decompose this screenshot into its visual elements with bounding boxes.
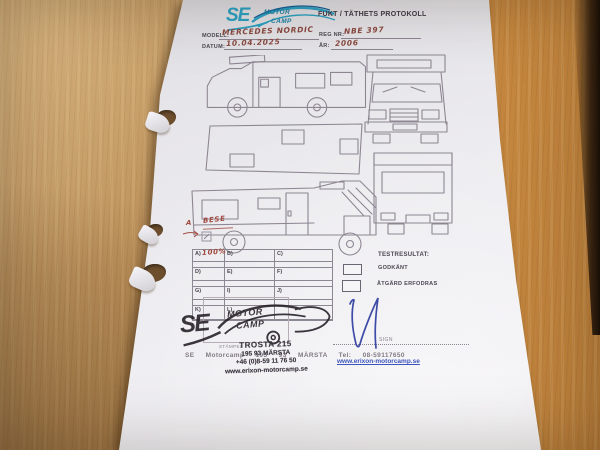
grid-cell-c: C): [275, 250, 332, 262]
ar-label: ÅR:: [319, 43, 330, 49]
drawing-roof-view: [196, 123, 376, 179]
ar-value: 2006: [335, 38, 359, 48]
signature-ink: [340, 294, 402, 352]
logo-motor-text: MOTOR: [264, 9, 290, 16]
page-title: FUKT / TÄTHETS PROTOKOLL: [318, 11, 427, 18]
grid-cell-e: E): [225, 268, 275, 281]
stamp-address-block: TROSTA 215 195 93 MÄRSTA +46 (0)8-59 11 …: [219, 339, 312, 376]
annotation-a: A: [186, 219, 192, 227]
torn-hole-top: [146, 104, 184, 138]
footer-website-link: www.erixon-motorcamp.se: [337, 358, 420, 365]
label-godkant: GODKÄNT: [378, 265, 408, 271]
logo-camp-text: CAMP: [271, 18, 292, 25]
ar-underline: [331, 49, 393, 50]
stamp-se-text: SE: [179, 309, 210, 339]
torn-hole-middle: [139, 220, 173, 248]
annotation-check-box: [201, 231, 212, 242]
torn-hole-bottom: [130, 256, 174, 292]
datum-label: DATUM:: [202, 44, 225, 50]
annotation-arrow-icon: [181, 227, 201, 241]
paper-sheet-wrapper: SE MOTOR CAMP FUKT / TÄTHETS PROTOKOLL M…: [0, 0, 600, 450]
checkbox-godkant: [343, 264, 362, 275]
drawing-side-view-left: [192, 55, 374, 121]
grid-cell-f: F): [275, 268, 332, 281]
datum-underline: [224, 49, 302, 50]
grid-cell-a-value: 100%: [202, 247, 227, 257]
grid-cell-a: A) 100%: [193, 250, 225, 262]
grid-cell-b: B): [225, 250, 275, 262]
checkbox-atgard: [342, 280, 361, 292]
datum-value: 10.04.2025: [226, 37, 281, 48]
label-atgard: ÅTGÄRD ERFODRAS: [377, 281, 437, 287]
photo-of-protocol-document: SE MOTOR CAMP FUKT / TÄTHETS PROTOKOLL M…: [0, 0, 600, 450]
logo-se-text: SE: [226, 5, 249, 27]
grid-cell-d: D): [193, 268, 225, 281]
protocol-paper-sheet: SE MOTOR CAMP FUKT / TÄTHETS PROTOKOLL M…: [0, 0, 600, 450]
testresultat-label: TESTRESULTAT:: [378, 252, 429, 258]
